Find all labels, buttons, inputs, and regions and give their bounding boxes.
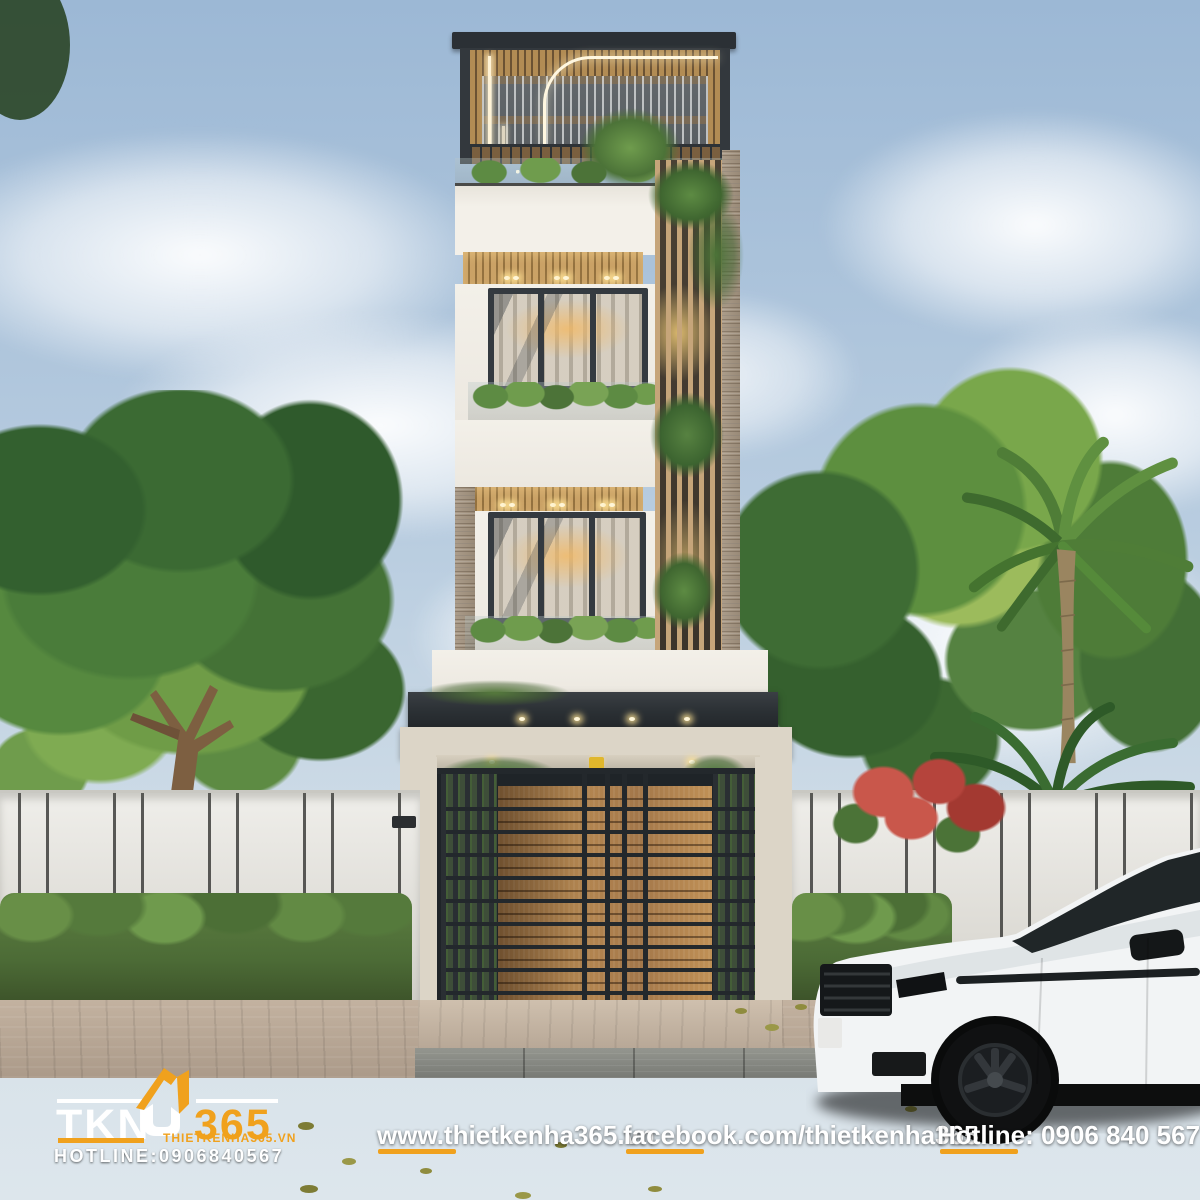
downlight <box>609 503 615 507</box>
gate-top-rail <box>436 768 760 774</box>
architectural-render-scene: TKN 365 THIETKENHA365.VN HOTLINE:0906840… <box>0 0 1200 1200</box>
logo-domain: THIETKENHA365.VN <box>163 1131 296 1145</box>
window-mullion <box>538 294 544 386</box>
fallen-leaf <box>648 1186 662 1192</box>
footer-hotline-underline <box>940 1149 1018 1154</box>
led-strip-light <box>488 56 491 154</box>
corner-foliage <box>0 0 70 120</box>
hanging-plants <box>652 552 716 630</box>
fallen-leaf <box>735 1008 747 1014</box>
gate-vertical-bar <box>643 770 648 1007</box>
spandrel-wall <box>455 420 655 487</box>
floor3-window <box>488 512 646 624</box>
roof-slab <box>452 32 736 49</box>
downlight <box>604 276 610 280</box>
downlight <box>563 276 569 280</box>
downlight <box>600 503 606 507</box>
downlight <box>559 503 565 507</box>
floor4-planter <box>468 382 656 424</box>
canopy-downlight <box>684 717 690 721</box>
hanging-plants <box>650 392 724 478</box>
fallen-leaf <box>300 1185 318 1193</box>
intercom-box <box>392 816 416 828</box>
downlight <box>509 503 515 507</box>
canopy-downlight <box>574 717 580 721</box>
window-mullion <box>590 294 596 386</box>
fallen-leaf <box>515 1192 531 1199</box>
footer-facebook: facebook.com/thietkenha365 <box>623 1120 978 1151</box>
downlight <box>554 276 560 280</box>
downlight <box>513 276 519 280</box>
gate-pier-right <box>755 757 792 1007</box>
downlight <box>504 276 510 280</box>
footer-hotline: Hotline: 0906 840 567 <box>937 1120 1200 1151</box>
footer-facebook-underline <box>626 1149 704 1154</box>
footer-website: www.thietkenha365.vn <box>377 1120 655 1151</box>
fallen-leaf <box>298 1122 314 1130</box>
hedge-left <box>0 893 412 1005</box>
gate-vertical-bar <box>605 770 610 1007</box>
hanging-plants <box>688 200 744 310</box>
gate-vertical-bar <box>622 770 627 1007</box>
downlight <box>500 503 506 507</box>
floor4-window <box>488 288 648 392</box>
canopy-downlight <box>629 717 635 721</box>
window-mullion <box>538 518 544 618</box>
floor3-soffit <box>463 487 643 511</box>
white-suv-car <box>806 840 1200 1150</box>
footer-website-underline <box>378 1149 456 1154</box>
logo-underline <box>58 1138 144 1143</box>
logo-house-icon <box>134 1064 192 1140</box>
driveway <box>418 1000 782 1048</box>
canopy-downlight <box>519 717 525 721</box>
fallen-leaf <box>420 1168 432 1174</box>
stone-beam <box>400 727 792 758</box>
logo-hotline: HOTLINE:0906840567 <box>54 1146 284 1167</box>
parapet-wall <box>455 183 655 255</box>
fallen-leaf <box>342 1158 356 1165</box>
downlight <box>613 276 619 280</box>
cloud <box>820 110 1200 340</box>
gate-horizontal-bars <box>446 790 760 995</box>
gate-vertical-bar <box>582 770 587 1007</box>
canopy-vine <box>420 680 570 706</box>
fallen-leaf <box>765 1024 779 1031</box>
tree-trunk-branches <box>60 600 320 800</box>
window-mullion <box>589 518 595 618</box>
downlight <box>550 503 556 507</box>
